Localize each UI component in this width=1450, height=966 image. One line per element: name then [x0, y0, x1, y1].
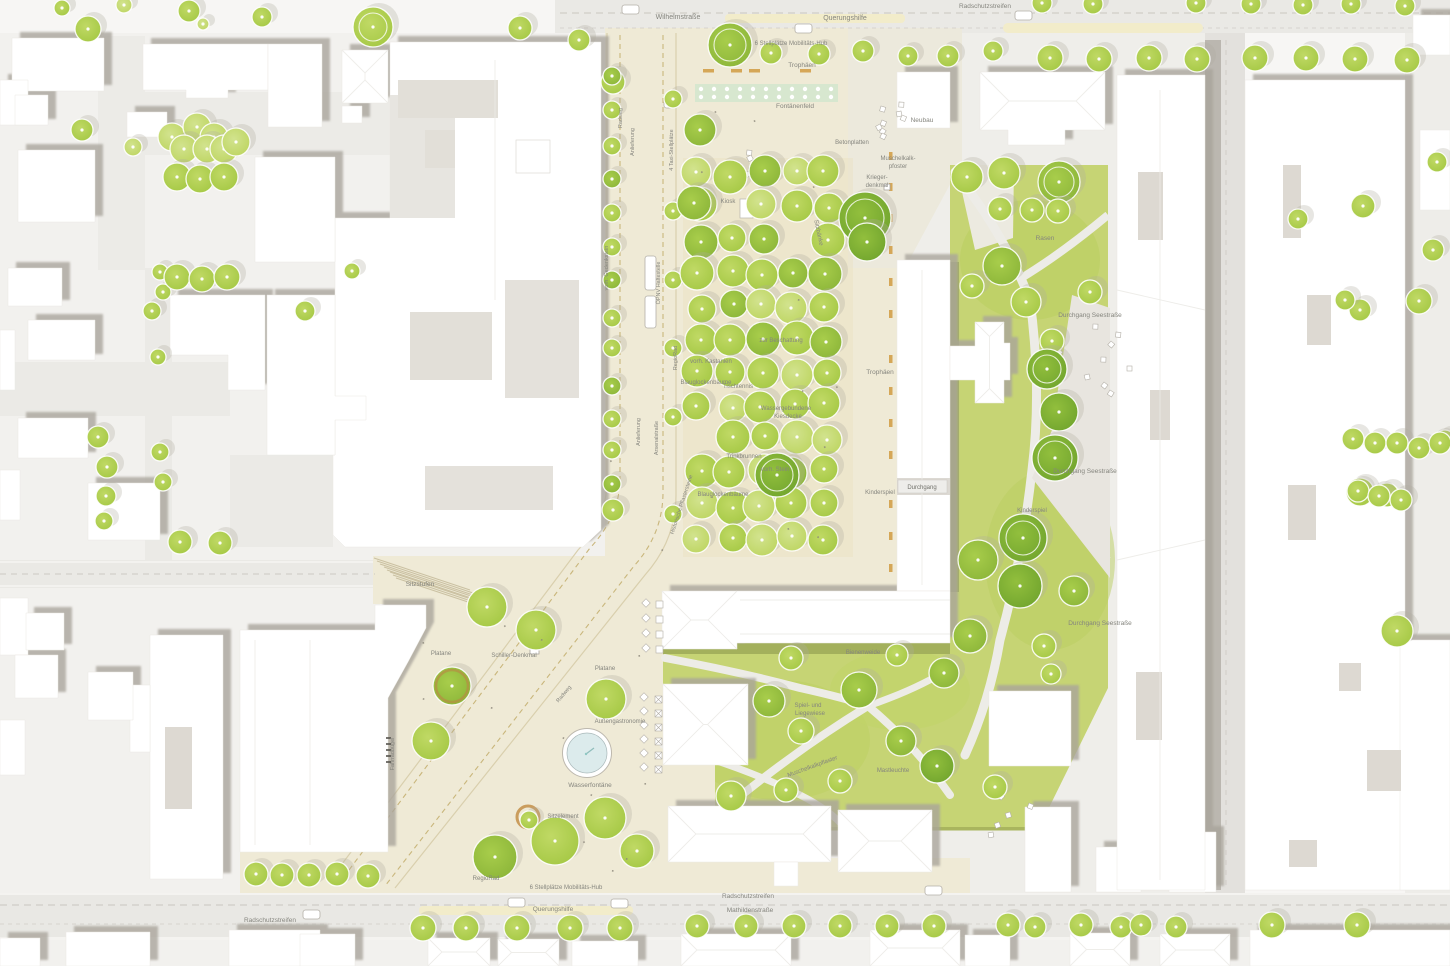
svg-text:Mathildenstraße: Mathildenstraße — [727, 907, 774, 914]
svg-text:Wasserfontäne: Wasserfontäne — [568, 782, 612, 789]
svg-text:Radschutzstreifen: Radschutzstreifen — [722, 893, 774, 900]
svg-text:Fahrradbügel: Fahrradbügel — [390, 738, 396, 771]
svg-text:ÖPNV Haltestelle: ÖPNV Haltestelle — [655, 262, 662, 305]
svg-text:Liegewiese: Liegewiese — [795, 711, 826, 717]
svg-text:Arsenalstraße: Arsenalstraße — [654, 421, 660, 455]
svg-text:Kiesdecke: Kiesdecke — [774, 414, 802, 420]
svg-text:Rasen: Rasen — [1036, 235, 1055, 242]
svg-text:zur Beschattung: zur Beschattung — [759, 338, 802, 344]
svg-text:4 Taxi-Stellplätze: 4 Taxi-Stellplätze — [669, 129, 675, 170]
svg-text:Krieger-: Krieger- — [866, 175, 887, 181]
svg-text:Sitzstufen: Sitzstufen — [406, 581, 435, 588]
svg-text:RegioRad: RegioRad — [473, 876, 500, 882]
svg-text:6 Stellplätze Mobilitäts-Hub: 6 Stellplätze Mobilitäts-Hub — [755, 41, 828, 47]
svg-text:Betonplatten: Betonplatten — [835, 140, 869, 146]
svg-text:Trophäen: Trophäen — [788, 62, 816, 69]
svg-text:Querungshilfe: Querungshilfe — [823, 15, 867, 22]
svg-text:Tischtennis: Tischtennis — [723, 384, 753, 390]
svg-text:Durchgang: Durchgang — [907, 485, 936, 491]
svg-text:Platane: Platane — [431, 651, 452, 657]
svg-text:denkmal: denkmal — [866, 183, 889, 189]
svg-text:Durchgang Seestraße: Durchgang Seestraße — [1068, 620, 1132, 627]
svg-text:Sitzelement: Sitzelement — [547, 814, 579, 820]
svg-text:Neubau: Neubau — [911, 117, 934, 124]
svg-text:Anlieferung: Anlieferung — [630, 128, 636, 156]
svg-text:Wassergebundene: Wassergebundene — [761, 406, 812, 412]
svg-text:Platane: Platane — [595, 666, 616, 672]
svg-text:Durchgang Seestraße: Durchgang Seestraße — [1053, 468, 1117, 475]
svg-text:Schiller-Denkmal: Schiller-Denkmal — [491, 653, 536, 659]
svg-text:Muschelkalk-: Muschelkalk- — [880, 156, 915, 162]
svg-text:Spiel- und: Spiel- und — [794, 703, 821, 709]
svg-text:6 Stellplätze Mobilitäts-Hub: 6 Stellplätze Mobilitäts-Hub — [530, 885, 603, 891]
svg-text:Bienenweide: Bienenweide — [846, 650, 881, 656]
svg-text:Durchgang Seestraße: Durchgang Seestraße — [1058, 312, 1122, 319]
svg-text:vorh. Kastanien: vorh. Kastanien — [690, 359, 732, 365]
svg-text:Kiosk: Kiosk — [721, 199, 737, 205]
svg-text:Radschutzstreifen: Radschutzstreifen — [244, 917, 296, 924]
svg-text:Anlieferung: Anlieferung — [636, 418, 642, 446]
svg-text:vorh. Gedenkstein: vorh. Gedenkstein — [604, 246, 610, 291]
svg-text:vorh. Stein: vorh. Stein — [761, 467, 790, 473]
svg-text:RegioRad: RegioRad — [673, 346, 679, 370]
svg-text:Trophäen: Trophäen — [866, 369, 894, 376]
svg-text:Kinderspiel: Kinderspiel — [865, 490, 895, 496]
svg-text:Querungshilfe: Querungshilfe — [533, 906, 574, 913]
svg-text:Wilhelmstraße: Wilhelmstraße — [656, 14, 701, 21]
svg-text:Mastleuchte: Mastleuchte — [877, 768, 910, 774]
svg-text:Blauglockenbäume: Blauglockenbäume — [697, 492, 749, 498]
svg-text:Radschutzstreifen: Radschutzstreifen — [959, 3, 1011, 10]
svg-text:Kinderspiel: Kinderspiel — [1017, 508, 1047, 514]
svg-text:Radweg: Radweg — [618, 108, 624, 128]
svg-text:Fontänenfeld: Fontänenfeld — [776, 103, 814, 110]
svg-text:pfoster: pfoster — [889, 164, 907, 170]
svg-text:Außengastronomie: Außengastronomie — [595, 719, 646, 725]
svg-text:Trinkbrunnen: Trinkbrunnen — [726, 454, 761, 460]
